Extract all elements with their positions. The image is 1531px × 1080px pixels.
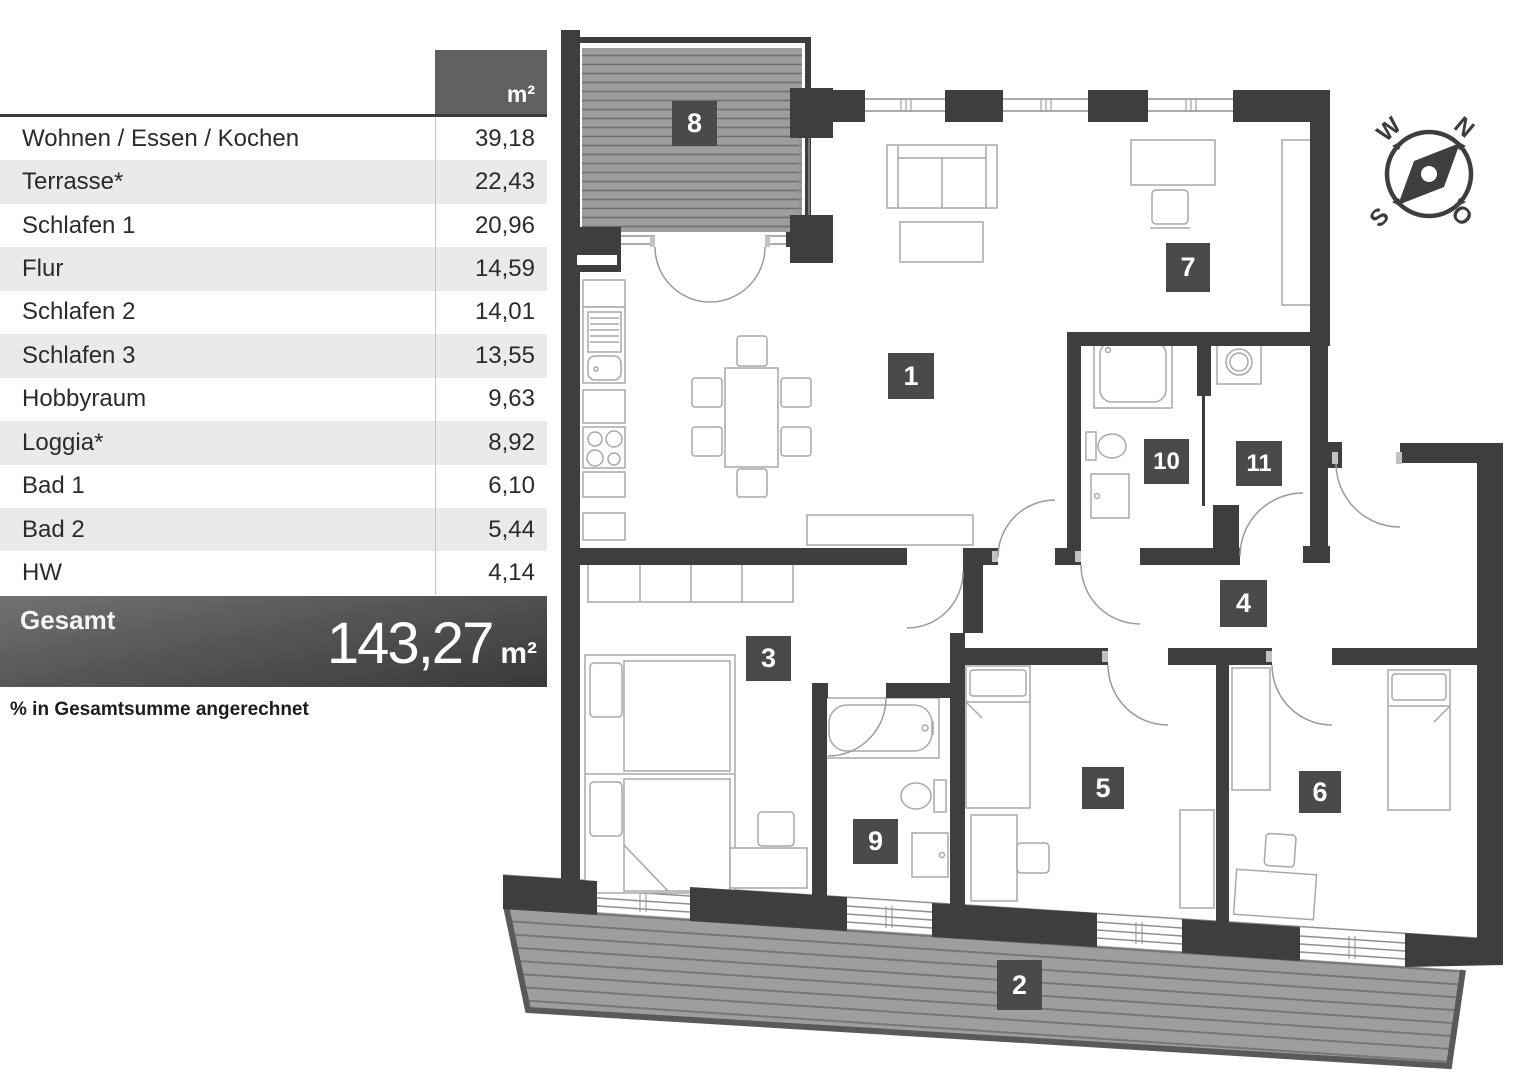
table-row: HW4,14 xyxy=(0,551,547,594)
table-row: Loggia*8,92 xyxy=(0,421,547,464)
sink-bath2 xyxy=(1091,474,1129,518)
toilet-bath1 xyxy=(901,780,946,812)
washing-machine xyxy=(1217,340,1261,384)
total-unit: m² xyxy=(500,637,537,671)
table-row: Flur14,59 xyxy=(0,247,547,290)
table-row: Schlafen 214,01 xyxy=(0,291,547,334)
room-name: Terrasse* xyxy=(0,168,435,196)
room-label-9: 9 xyxy=(853,819,898,864)
column-separator xyxy=(435,117,436,595)
kitchen-sink xyxy=(588,312,621,380)
room-label-7: 7 xyxy=(1166,243,1210,292)
room-area: 39,18 xyxy=(435,125,547,153)
unit-header: m² xyxy=(435,50,547,115)
wardrobe-bedroom3 xyxy=(1232,668,1270,790)
total-value: 143,27 xyxy=(327,610,492,677)
table-row: Bad 16,10 xyxy=(0,465,547,508)
room-name: Schlafen 1 xyxy=(0,212,435,240)
table-row: Wohnen / Essen / Kochen39,18 xyxy=(0,117,547,160)
room-name: Bad 2 xyxy=(0,516,435,544)
room-label-1: 1 xyxy=(888,353,934,399)
room-area: 20,96 xyxy=(435,212,547,240)
sideboard xyxy=(807,515,973,545)
room-label-11: 11 xyxy=(1236,441,1282,486)
coffee-table xyxy=(900,222,983,262)
room-name: Wohnen / Essen / Kochen xyxy=(0,125,435,153)
table-rows: Wohnen / Essen / Kochen39,18 Terrasse*22… xyxy=(0,117,547,595)
bed-bedroom2 xyxy=(966,666,1030,808)
room-name: Schlafen 2 xyxy=(0,298,435,326)
room-area: 14,59 xyxy=(435,255,547,283)
room-name: Loggia* xyxy=(0,429,435,457)
room-name: Schlafen 3 xyxy=(0,342,435,370)
wardrobe-hobby xyxy=(1282,140,1312,305)
bathtub xyxy=(822,698,939,758)
room-label-6: 6 xyxy=(1299,771,1341,813)
room-label-4: 4 xyxy=(1220,580,1267,627)
table-row: Bad 25,44 xyxy=(0,508,547,551)
total-bar: Gesamt 143,27m² xyxy=(0,596,547,687)
room-label-2: 2 xyxy=(997,960,1042,1010)
table-row: Hobbyraum9,63 xyxy=(0,378,547,421)
room-name: Flur xyxy=(0,255,435,283)
wardrobe-bedroom2 xyxy=(1180,810,1214,908)
room-label-3: 3 xyxy=(746,636,791,681)
wardrobe-bedroom1 xyxy=(588,560,793,602)
room-area: 5,44 xyxy=(435,516,547,544)
double-bed xyxy=(585,655,735,893)
room-area: 4,14 xyxy=(435,559,547,587)
room-area: 13,55 xyxy=(435,342,547,370)
room-label-10: 10 xyxy=(1144,439,1189,484)
sofa xyxy=(887,145,997,208)
room-name: HW xyxy=(0,559,435,587)
chair-bedroom2 xyxy=(1017,843,1049,873)
table-row: Terrasse*22,43 xyxy=(0,160,547,203)
room-label-8: 8 xyxy=(672,101,717,146)
room-name: Hobbyraum xyxy=(0,385,435,413)
desk-hobby xyxy=(1131,140,1215,185)
desk-bedroom3 xyxy=(1234,831,1320,919)
dining-table xyxy=(692,336,811,497)
table-row: Schlafen 313,55 xyxy=(0,334,547,377)
toilet-bath2 xyxy=(1086,432,1126,460)
desk-bedroom2 xyxy=(971,815,1017,901)
chair-bedroom1 xyxy=(758,812,794,846)
room-area: 22,43 xyxy=(435,168,547,196)
room-label-5: 5 xyxy=(1082,767,1124,809)
floorplan-page: m² Wohnen / Essen / Kochen39,18 Terrasse… xyxy=(0,0,1531,1080)
total-label: Gesamt xyxy=(20,605,115,636)
room-name: Bad 1 xyxy=(0,472,435,500)
room-area: 6,10 xyxy=(435,472,547,500)
bed-bedroom3 xyxy=(1388,670,1450,810)
room-area: 8,92 xyxy=(435,429,547,457)
sink-bath1 xyxy=(912,833,948,877)
table-row: Schlafen 120,96 xyxy=(0,204,547,247)
room-area: 9,63 xyxy=(435,385,547,413)
shower xyxy=(1094,336,1172,408)
room-area: 14,01 xyxy=(435,298,547,326)
footnote: % in Gesamtsumme angerechnet xyxy=(10,699,309,721)
chair-hobby xyxy=(1150,190,1190,228)
desk-bedroom1 xyxy=(730,848,807,888)
